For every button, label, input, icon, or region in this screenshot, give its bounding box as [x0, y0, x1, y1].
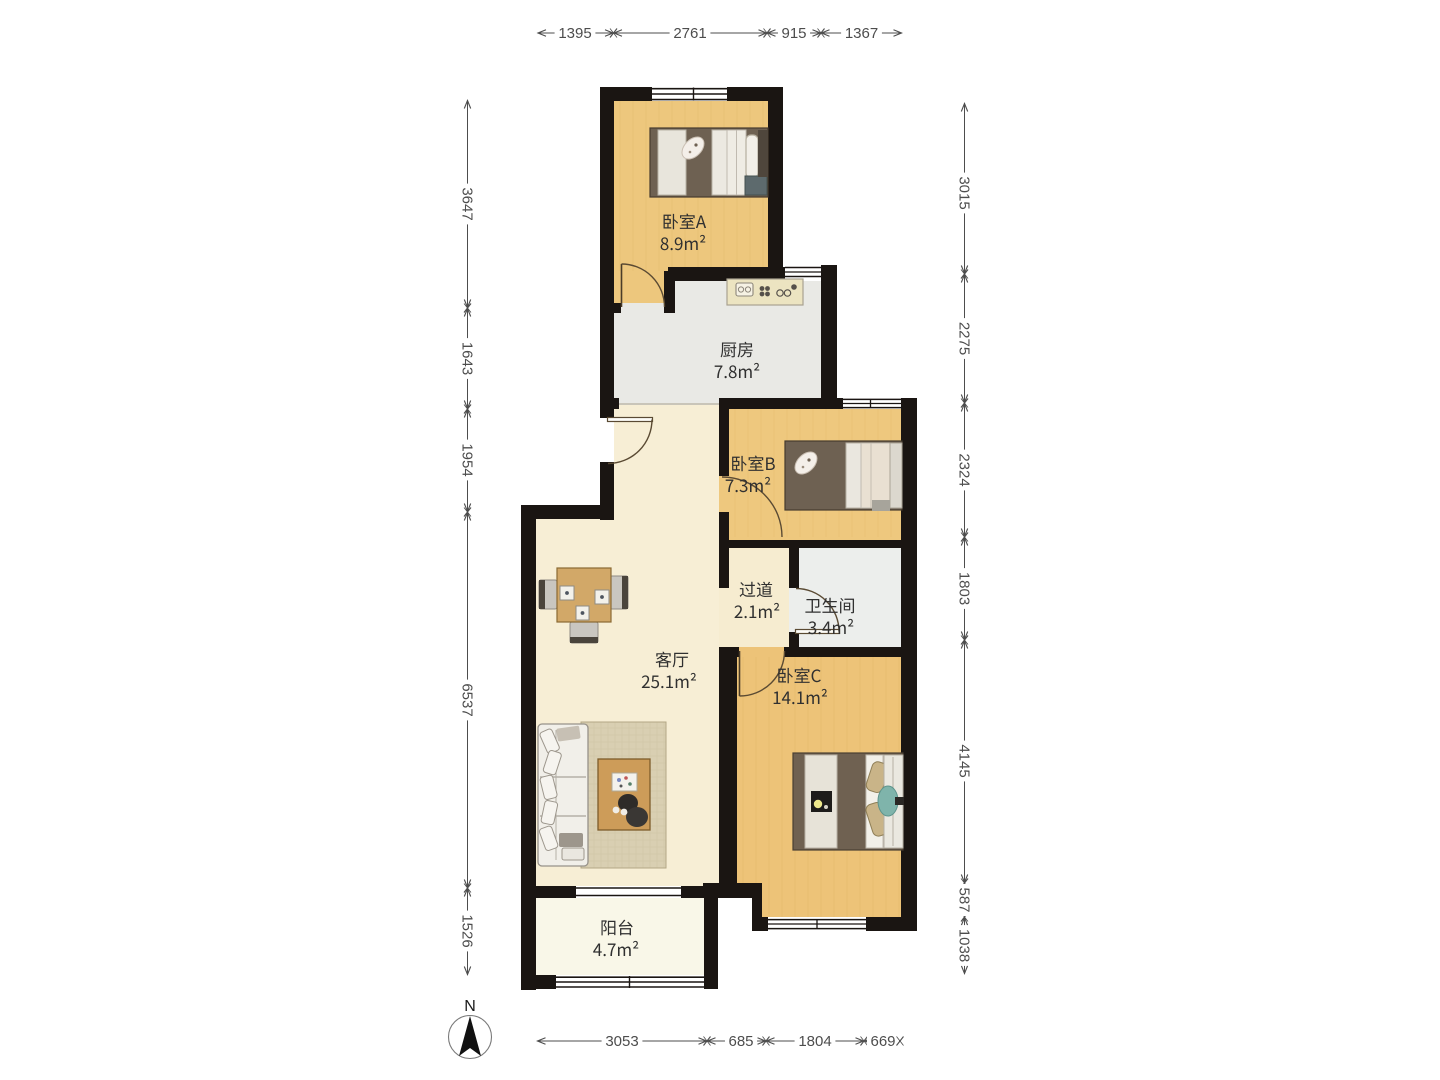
svg-text:1803: 1803: [956, 572, 973, 605]
svg-text:4145: 4145: [956, 744, 973, 777]
svg-text:1643: 1643: [459, 342, 476, 375]
svg-text:6537: 6537: [459, 683, 476, 716]
svg-text:2761: 2761: [673, 25, 706, 42]
svg-text:2324: 2324: [956, 453, 973, 486]
svg-text:1526: 1526: [459, 914, 476, 947]
svg-text:587: 587: [956, 887, 973, 912]
svg-text:669: 669: [870, 1033, 895, 1050]
svg-text:1395: 1395: [558, 25, 591, 42]
svg-text:3015: 3015: [956, 176, 973, 209]
svg-text:1804: 1804: [798, 1033, 831, 1050]
svg-text:1367: 1367: [845, 25, 878, 42]
svg-text:3053: 3053: [605, 1033, 638, 1050]
svg-text:3647: 3647: [459, 187, 476, 220]
svg-text:685: 685: [728, 1033, 753, 1050]
svg-text:1954: 1954: [459, 443, 476, 476]
svg-text:1038: 1038: [956, 929, 973, 962]
svg-text:N: N: [464, 998, 476, 1015]
svg-text:2275: 2275: [956, 322, 973, 355]
svg-text:915: 915: [781, 25, 806, 42]
